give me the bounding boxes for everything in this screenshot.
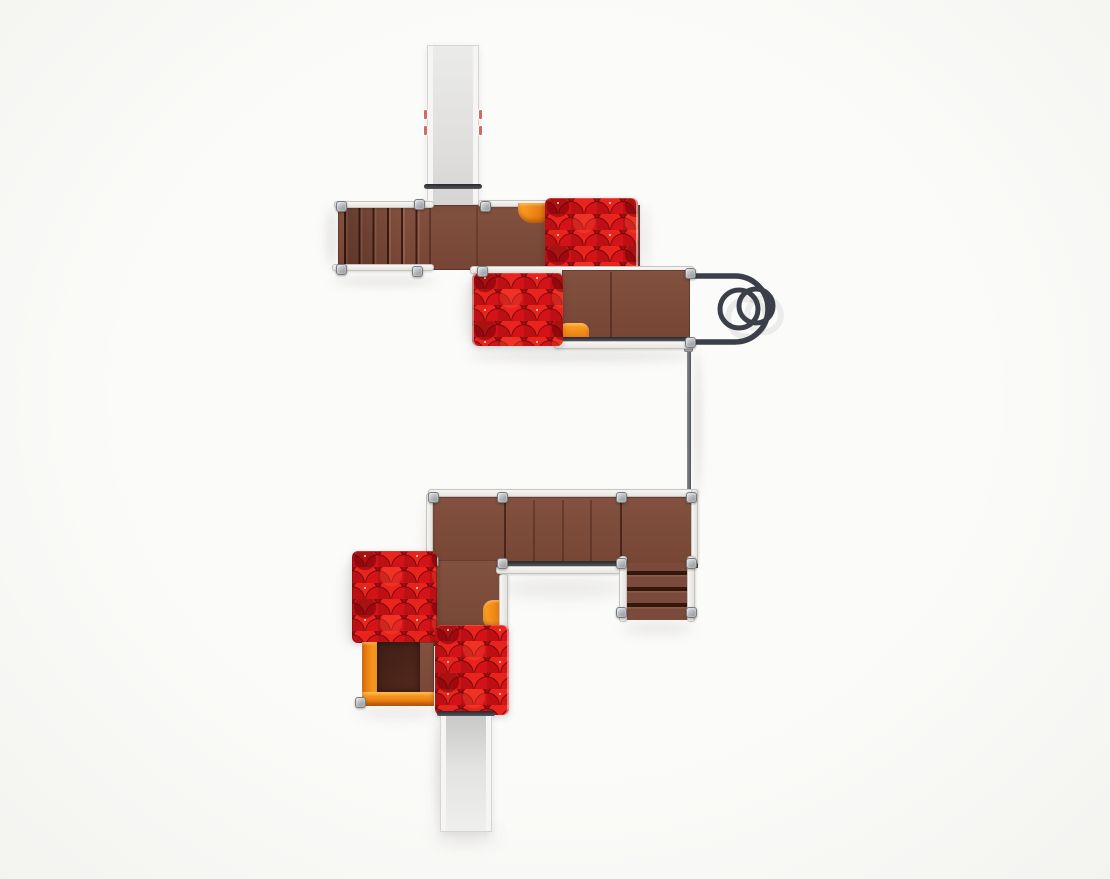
corner-post (336, 264, 347, 275)
corner-post (480, 201, 491, 212)
panel-seam (620, 500, 622, 557)
corner-post (497, 492, 508, 503)
panel-seam (590, 500, 592, 562)
corner-post (497, 558, 508, 569)
shadow (622, 622, 694, 634)
guard-rail (428, 489, 698, 497)
panel-seam (476, 207, 478, 268)
shadow (640, 206, 650, 270)
wall-edge (499, 574, 508, 630)
lower-deck (432, 497, 698, 568)
lower-roof-right (435, 625, 509, 715)
slide-clip (479, 110, 482, 119)
crawl-box-wall (362, 692, 434, 706)
shadow (468, 350, 696, 362)
shadow (356, 708, 438, 718)
panel-seam (504, 500, 506, 566)
panel-seam (610, 272, 612, 340)
shadow (326, 208, 338, 266)
lower-stairs (627, 563, 687, 620)
corner-post (414, 199, 425, 210)
corner-post (477, 266, 488, 277)
upper-stairs (344, 207, 430, 268)
shadow (498, 580, 628, 596)
corner-post (686, 607, 697, 618)
corner-post (355, 697, 366, 708)
corner-post (412, 266, 423, 277)
panel-seam (429, 207, 431, 268)
upper-slide (428, 46, 478, 204)
corner-post (428, 492, 439, 503)
corner-post (685, 337, 696, 348)
guard-rail (554, 341, 694, 349)
corner-post (616, 492, 627, 503)
shadow (332, 276, 436, 286)
shadow (694, 352, 702, 494)
loop-climber (683, 264, 793, 356)
lower-slide (441, 713, 491, 831)
slide-clip (424, 110, 427, 119)
corner-post (336, 201, 347, 212)
upper-roof (545, 198, 638, 272)
middle-roof (472, 273, 563, 346)
slide-clip (479, 126, 482, 135)
connecting-beam (687, 346, 691, 498)
panel-seam (562, 500, 564, 562)
corner-post (616, 558, 627, 569)
corner-post (616, 607, 627, 618)
corner-post (685, 268, 696, 279)
playground-render (0, 0, 1110, 879)
shadow (464, 280, 472, 344)
guard-rail (496, 566, 628, 574)
corner-post (686, 492, 697, 503)
panel-seam (533, 500, 535, 562)
slide-clip (424, 126, 427, 135)
interior-opening (376, 642, 420, 692)
lower-roof-left (352, 551, 437, 643)
safety-bar (424, 184, 482, 189)
corner-post (686, 558, 697, 569)
slide-mount-bar (437, 711, 495, 716)
